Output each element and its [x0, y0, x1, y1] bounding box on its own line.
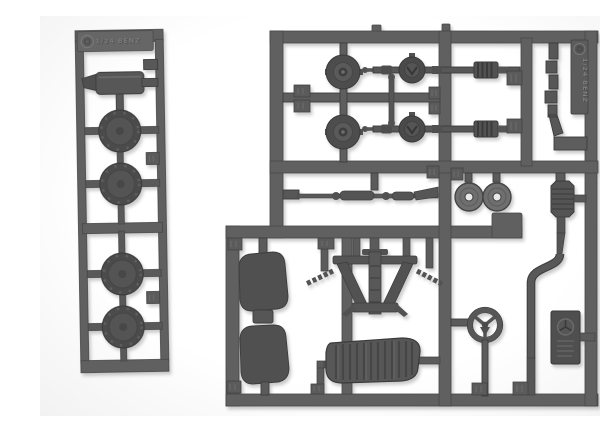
runner-link — [253, 310, 273, 323]
part-number-tab — [294, 85, 310, 97]
part-number-tab — [311, 384, 324, 394]
frame-inner-rail — [521, 38, 532, 166]
tie-rod-section — [283, 173, 438, 200]
brake-disc-part — [455, 180, 483, 211]
brake-disc-part — [483, 180, 511, 211]
frame-mid-rail-lower — [226, 226, 522, 238]
right-plate-embossed-text: 1/24 BENZ — [581, 58, 589, 103]
runner-stub — [283, 190, 299, 199]
part-number-tab — [507, 119, 522, 133]
part-number-tab — [228, 238, 242, 250]
frame-rail-end-block — [492, 213, 522, 238]
runner-stub — [259, 238, 267, 254]
runner-stub — [116, 94, 123, 111]
fuel-tank-section — [317, 338, 440, 394]
part-number-tab — [427, 166, 439, 178]
tire-part — [101, 253, 144, 296]
part-number-tab — [451, 168, 463, 180]
maker-logo-icon — [574, 44, 585, 55]
left-frame-right-rail — [155, 39, 169, 361]
exhaust-tailpipe-part — [527, 217, 565, 395]
part-number-tab — [507, 71, 522, 85]
brake-drum-part — [325, 115, 363, 149]
tire-part — [98, 110, 141, 153]
steering-wheel-part — [467, 307, 502, 342]
seat-part — [240, 325, 289, 384]
exhaust-header-pipe-part — [545, 43, 563, 136]
tire-part — [99, 163, 142, 206]
seat-part — [239, 252, 288, 311]
muffler-highlight — [99, 77, 141, 78]
part-number-tab — [318, 238, 334, 249]
tie-rod-part — [298, 187, 438, 200]
frame-bottom-rail — [226, 394, 598, 406]
runner-stub — [261, 382, 269, 395]
part-number-tab — [429, 102, 440, 114]
frame-lower-left-rail — [226, 226, 239, 406]
part-number-tab — [429, 87, 440, 99]
part-number-tab — [294, 100, 310, 112]
link-rod-part — [388, 74, 395, 127]
left-plate-embossed-text: 1/24 BENZ — [96, 37, 141, 46]
tire-parts — [84, 109, 162, 361]
front-suspension-section — [306, 238, 442, 317]
left-sprue: 1/24 BENZ 1/24 BENZ — [75, 29, 169, 372]
runner-stub — [371, 173, 378, 190]
part-number-tab — [227, 381, 241, 393]
frame-center-rail — [439, 31, 451, 406]
exhaust-muffler-part — [551, 181, 586, 217]
brake-drum-part — [325, 55, 363, 89]
left-maker-plate: 1/24 BENZ 1/24 BENZ — [77, 30, 153, 51]
sprues-illustration: 1/24 BENZ 1/24 BENZ — [40, 16, 600, 416]
muffler-part — [82, 59, 159, 111]
maker-logo-icon — [81, 35, 93, 47]
main-sprue: 1/24 BENZ 1/24 BENZ — [226, 24, 598, 406]
muffler-body — [96, 72, 144, 95]
frame-left-rail — [270, 31, 283, 238]
right-maker-plate: 1/24 BENZ 1/24 BENZ — [571, 40, 590, 114]
runner-stub — [580, 333, 595, 341]
tire-part — [102, 306, 145, 349]
muffler-stub — [142, 78, 158, 86]
fuel-tank-part — [326, 338, 420, 383]
part-number-tab — [472, 383, 487, 395]
runner — [554, 137, 587, 150]
muffler-gate-block — [144, 59, 158, 69]
frame-top-rail — [270, 31, 598, 43]
model-kit-sprues-photo: 1/24 BENZ 1/24 BENZ — [40, 16, 600, 416]
left-frame-left-rail — [75, 41, 89, 363]
part-number-tab — [513, 382, 528, 395]
